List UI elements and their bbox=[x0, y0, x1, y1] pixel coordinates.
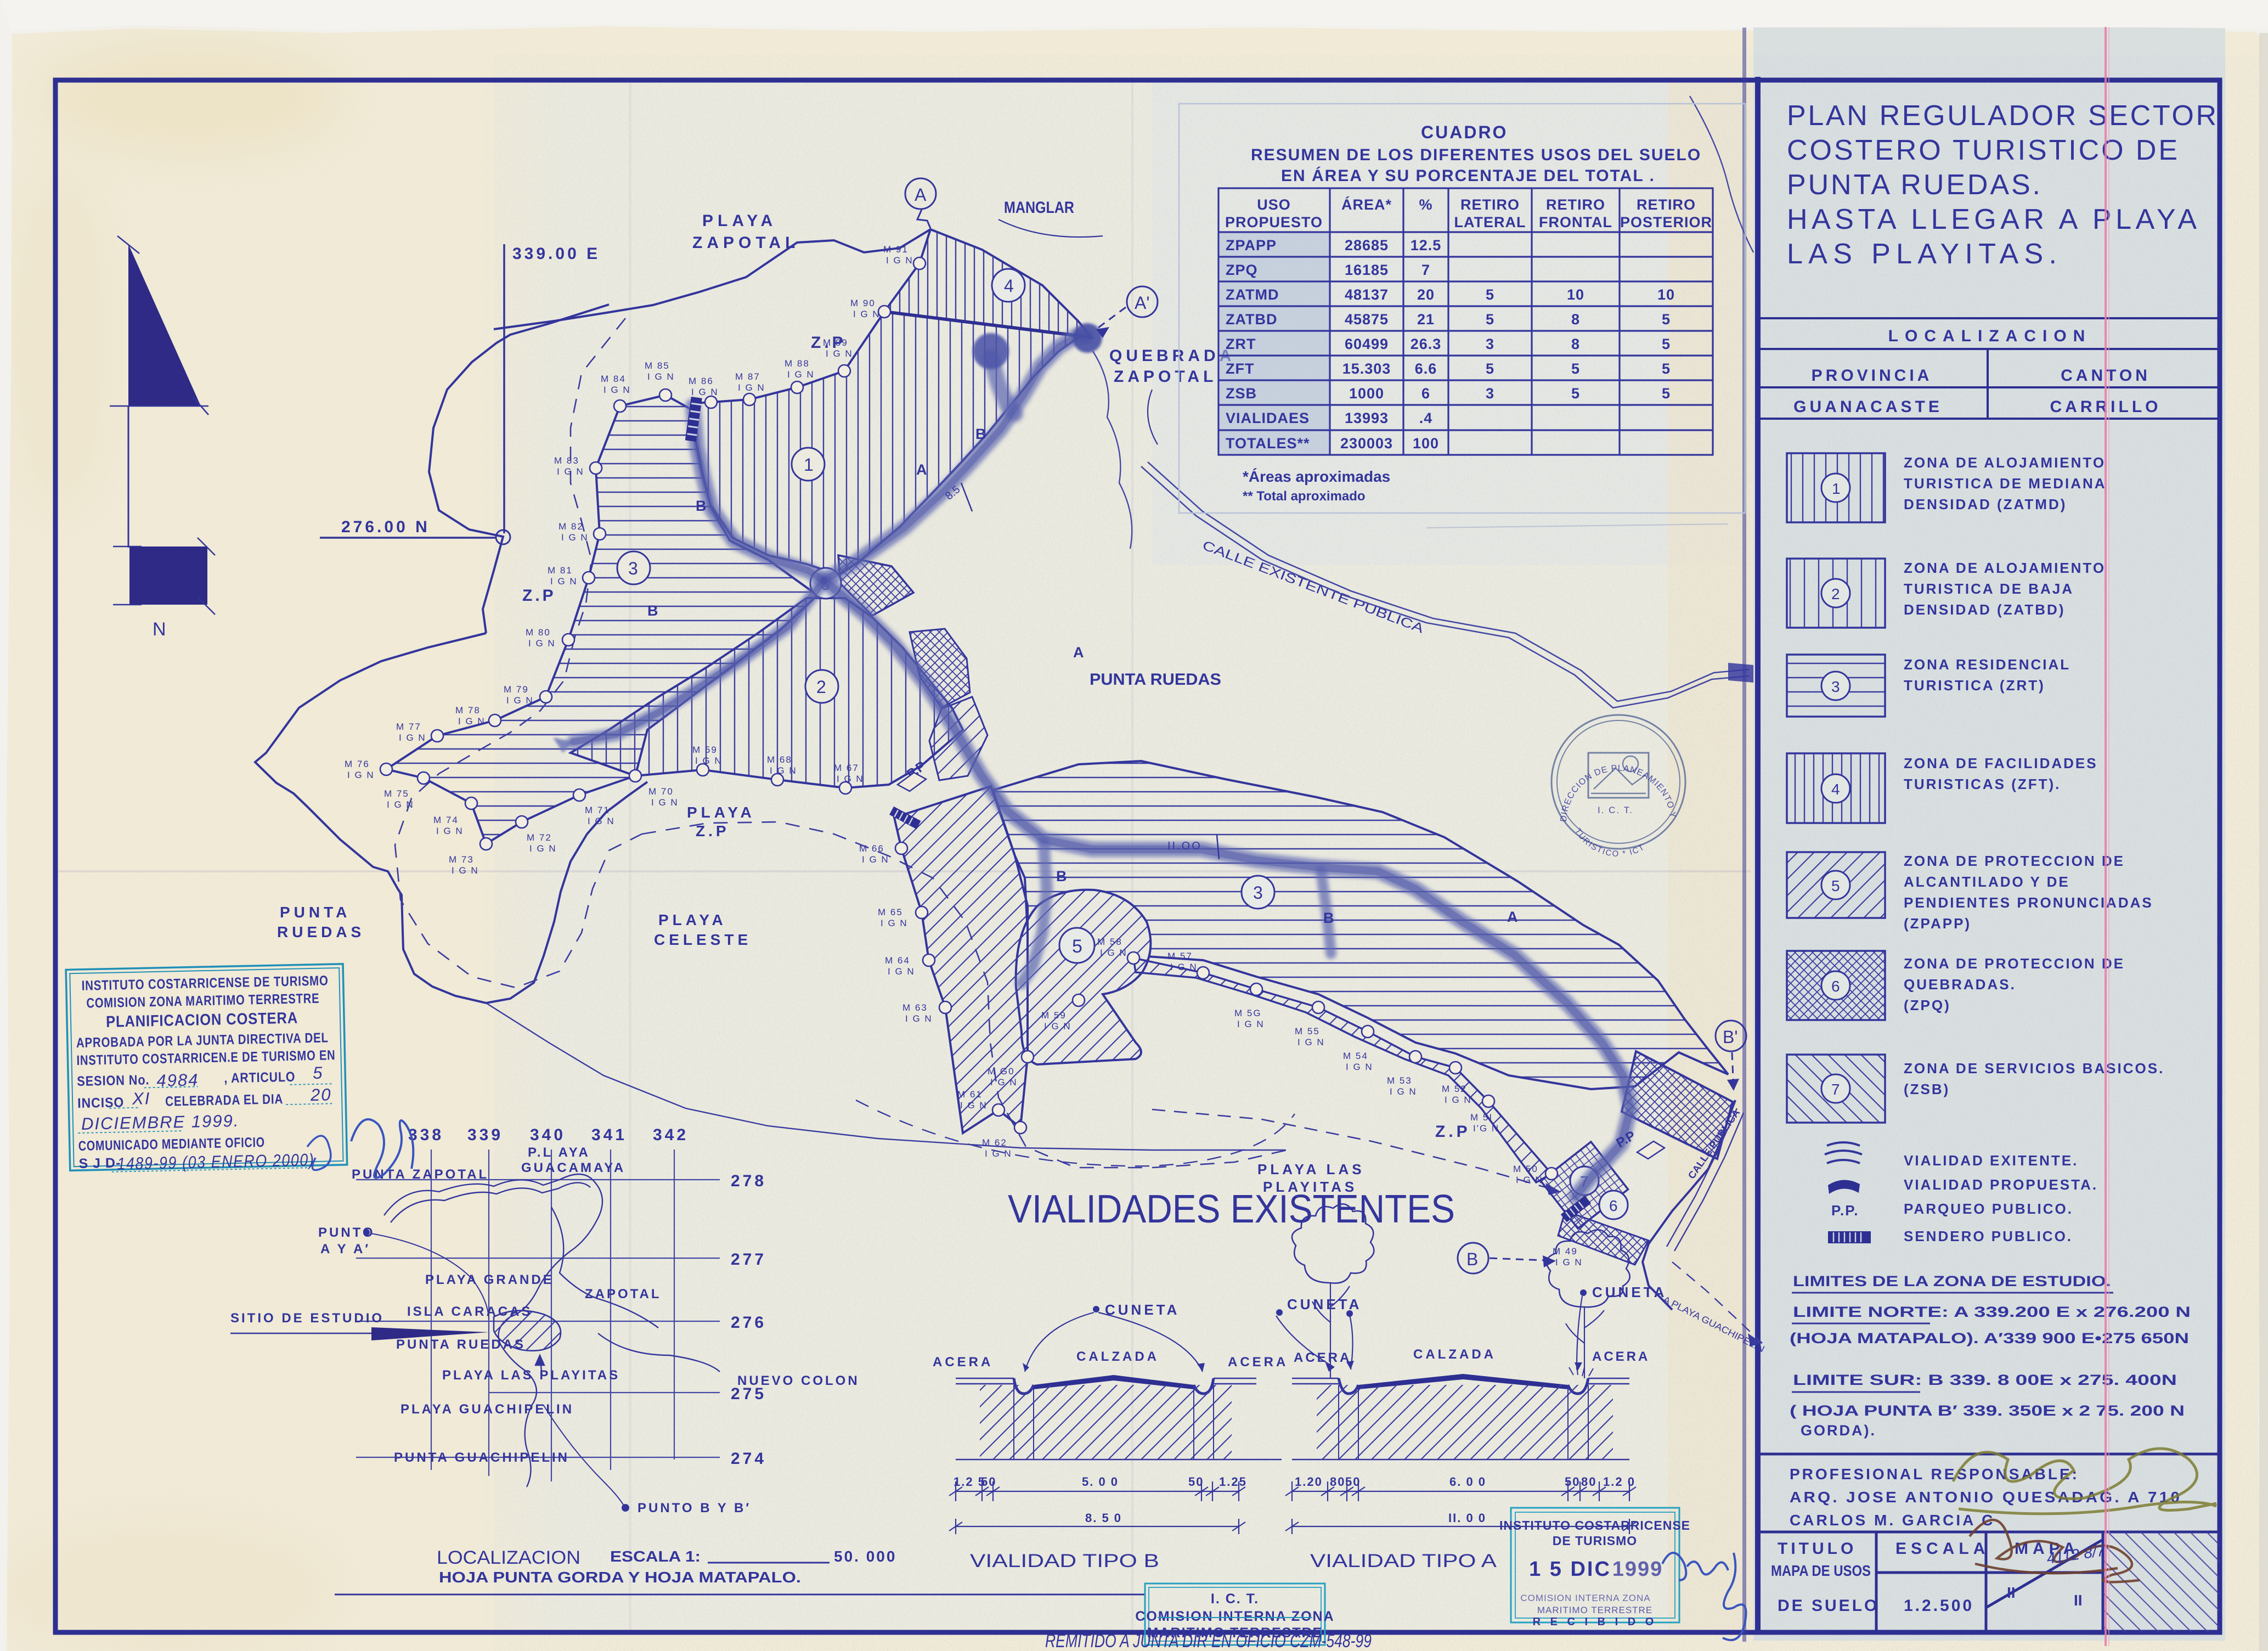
svg-text:VIALIDAD EXITENTE.: VIALIDAD EXITENTE. bbox=[1904, 1152, 2078, 1169]
svg-text:CARLOS M. GARCIA C: CARLOS M. GARCIA C bbox=[1790, 1512, 1995, 1529]
svg-text:M 66: M 66 bbox=[859, 843, 884, 854]
svg-text:ZAPOTAL: ZAPOTAL bbox=[1114, 368, 1217, 386]
svg-text:B: B bbox=[696, 498, 707, 514]
svg-text:I G N: I G N bbox=[985, 1148, 1012, 1159]
svg-text:DE SUELO: DE SUELO bbox=[1778, 1597, 1879, 1615]
svg-text:GUANACASTE: GUANACASTE bbox=[1793, 398, 1943, 416]
svg-text:TURISTICA (ZRT): TURISTICA (ZRT) bbox=[1904, 677, 2045, 694]
svg-text:SESION No.: SESION No. bbox=[77, 1072, 150, 1089]
svg-text:PROFESIONAL RESPONSABLE:: PROFESIONAL RESPONSABLE: bbox=[1790, 1466, 2079, 1483]
svg-text:TURISTICA DE MEDIANA: TURISTICA DE MEDIANA bbox=[1904, 475, 2107, 492]
svg-text:( HOJA PUNTA B′ 339. 350E: ( HOJA PUNTA B′ 339. 350E x 2 75. 200 N bbox=[1790, 1402, 2185, 1419]
svg-text:TOTALES**: TOTALES** bbox=[1226, 435, 1310, 452]
svg-text:RETIRO: RETIRO bbox=[1637, 196, 1696, 213]
svg-text:I G N: I G N bbox=[1555, 1257, 1583, 1267]
svg-text:A: A bbox=[916, 461, 927, 478]
svg-text:LIMITE NORTE: A 339.200 E x: LIMITE NORTE: A 339.200 E x 276.200 N bbox=[1793, 1304, 2191, 1320]
svg-text:ZSB: ZSB bbox=[1226, 385, 1257, 402]
svg-text:FRONTAL: FRONTAL bbox=[1539, 214, 1612, 230]
svg-text:3: 3 bbox=[1253, 883, 1263, 903]
svg-text:5: 5 bbox=[1571, 360, 1580, 377]
svg-text:3: 3 bbox=[1831, 678, 1840, 695]
svg-text:PUNTO B Y B′: PUNTO B Y B′ bbox=[637, 1501, 751, 1515]
svg-text:Z.P: Z.P bbox=[811, 334, 847, 352]
svg-text:I G N: I G N bbox=[561, 532, 589, 543]
svg-text:M 52: M 52 bbox=[1442, 1084, 1467, 1094]
svg-text:M 62: M 62 bbox=[982, 1137, 1007, 1148]
svg-text:ZRT: ZRT bbox=[1226, 336, 1256, 352]
svg-text:I G N: I G N bbox=[529, 843, 557, 854]
svg-text:M 88: M 88 bbox=[785, 358, 810, 369]
svg-text:DE TURISMO: DE TURISMO bbox=[1553, 1534, 1637, 1548]
svg-text:I G N: I G N bbox=[1237, 1019, 1265, 1029]
svg-text:ZONA DE PROTECCION DE: ZONA DE PROTECCION DE bbox=[1904, 853, 2125, 869]
svg-text:M 55: M 55 bbox=[1295, 1026, 1320, 1036]
svg-text:ARQ. JOSE ANTONIO QUESADAG. A: ARQ. JOSE ANTONIO QUESADAG. A 710 bbox=[1790, 1489, 2182, 1506]
svg-text:50: 50 bbox=[1345, 1475, 1361, 1489]
svg-text:RETIRO: RETIRO bbox=[1460, 196, 1520, 213]
svg-text:PUNTA RUEDAS: PUNTA RUEDAS bbox=[1090, 670, 1221, 689]
svg-text:1000: 1000 bbox=[1349, 385, 1384, 402]
svg-text:ACERA: ACERA bbox=[1294, 1350, 1351, 1365]
svg-text:342: 342 bbox=[653, 1126, 689, 1144]
svg-text:M 50: M 50 bbox=[1513, 1164, 1538, 1174]
svg-text:I G N: I G N bbox=[881, 918, 908, 928]
svg-text:I G N: I G N bbox=[506, 695, 534, 706]
svg-text:VIALIDAD TIPO A: VIALIDAD TIPO A bbox=[1310, 1551, 1497, 1571]
svg-text:TURISTICA DE BAJA: TURISTICA DE BAJA bbox=[1904, 581, 2074, 597]
svg-text:B: B bbox=[647, 602, 658, 619]
svg-text:ÁREA*: ÁREA* bbox=[1341, 196, 1392, 213]
svg-text:I G N: I G N bbox=[399, 732, 426, 743]
svg-text:5: 5 bbox=[1662, 385, 1671, 402]
svg-text:M 73: M 73 bbox=[449, 854, 474, 865]
svg-text:M 80: M 80 bbox=[526, 627, 551, 638]
svg-text:48137: 48137 bbox=[1345, 286, 1389, 303]
svg-text:I G N: I G N bbox=[1044, 1021, 1071, 1032]
svg-text:5: 5 bbox=[1486, 360, 1494, 377]
svg-text:INSTITUTO COSTARRICENSE: INSTITUTO COSTARRICENSE bbox=[1499, 1518, 1690, 1532]
svg-text:PLAYA LAS PLAYITAS: PLAYA LAS PLAYITAS bbox=[442, 1368, 620, 1383]
svg-text:6.6: 6.6 bbox=[1415, 360, 1437, 377]
svg-text:1999: 1999 bbox=[1612, 1558, 1663, 1581]
svg-text:I G N: I G N bbox=[1297, 1037, 1325, 1047]
svg-text:SITIO DE ESTUDIO: SITIO DE ESTUDIO bbox=[230, 1311, 384, 1326]
svg-text:M 78: M 78 bbox=[455, 705, 481, 715]
svg-text:13993: 13993 bbox=[1345, 410, 1389, 426]
svg-text:Z.P: Z.P bbox=[696, 822, 730, 839]
svg-text:M 68: M 68 bbox=[767, 754, 792, 765]
svg-text:I G N: I G N bbox=[651, 797, 679, 808]
svg-text:I G N: I G N bbox=[862, 854, 889, 865]
svg-text:CUNETA: CUNETA bbox=[1287, 1296, 1362, 1312]
svg-text:5. 0 0: 5. 0 0 bbox=[1082, 1475, 1119, 1489]
svg-text:ACERA: ACERA bbox=[933, 1355, 993, 1370]
svg-text:M 67: M 67 bbox=[834, 763, 859, 773]
svg-text:I G N: I G N bbox=[1445, 1095, 1472, 1105]
svg-text:M 53: M 53 bbox=[1387, 1075, 1412, 1086]
svg-text:VIALIDAES: VIALIDAES bbox=[1226, 410, 1310, 426]
svg-text:DENSIDAD (ZATMD): DENSIDAD (ZATMD) bbox=[1904, 496, 2067, 512]
svg-text:276: 276 bbox=[731, 1314, 766, 1332]
svg-text:PLAYA: PLAYA bbox=[658, 911, 727, 928]
svg-text:340: 340 bbox=[530, 1126, 566, 1144]
svg-text:ESCALA 1:: ESCALA 1: bbox=[610, 1548, 701, 1565]
svg-text:I G N: I G N bbox=[452, 865, 479, 876]
svg-text:PARQUEO PUBLICO.: PARQUEO PUBLICO. bbox=[1904, 1201, 2073, 1217]
svg-text:16185: 16185 bbox=[1345, 262, 1389, 278]
svg-text:COMISION INTERNA ZONA: COMISION INTERNA ZONA bbox=[1135, 1609, 1334, 1624]
svg-text:I. C. T.: I. C. T. bbox=[1598, 805, 1633, 815]
svg-text:1: 1 bbox=[804, 455, 814, 475]
svg-text:274: 274 bbox=[731, 1450, 766, 1468]
svg-text:6: 6 bbox=[1421, 385, 1430, 402]
svg-text:ZONA RESIDENCIAL: ZONA RESIDENCIAL bbox=[1904, 656, 2070, 673]
svg-text:26.3: 26.3 bbox=[1411, 336, 1442, 352]
svg-text:II. 0 0: II. 0 0 bbox=[1448, 1511, 1486, 1525]
svg-text:ZPQ: ZPQ bbox=[1226, 262, 1258, 278]
svg-text:TURISTICAS (ZFT).: TURISTICAS (ZFT). bbox=[1904, 776, 2061, 792]
svg-text:LOCALIZACION: LOCALIZACION bbox=[1888, 327, 2092, 345]
svg-text:I G N: I G N bbox=[528, 638, 556, 649]
svg-text:B': B' bbox=[1723, 1027, 1737, 1047]
svg-text:M 54: M 54 bbox=[1343, 1051, 1368, 1061]
svg-text:8. 5 0: 8. 5 0 bbox=[1085, 1511, 1122, 1525]
svg-text:B: B bbox=[1466, 1249, 1478, 1269]
svg-text:(HOJA MATAPALO). A′339 900 E: (HOJA MATAPALO). A′339 900 E•275 650N bbox=[1790, 1330, 2189, 1346]
svg-text:2: 2 bbox=[1831, 585, 1840, 602]
svg-text:I G N: I G N bbox=[853, 309, 881, 319]
svg-text:TITULO: TITULO bbox=[1778, 1540, 1857, 1558]
svg-text:80: 80 bbox=[1330, 1475, 1345, 1489]
svg-text:LATERAL: LATERAL bbox=[1454, 214, 1526, 230]
svg-text:M G0: M G0 bbox=[988, 1066, 1015, 1077]
svg-text:XI: XI bbox=[132, 1089, 151, 1108]
svg-text:28685: 28685 bbox=[1345, 237, 1389, 253]
svg-text:I G N: I G N bbox=[770, 765, 797, 776]
svg-text:276.00 N: 276.00 N bbox=[341, 518, 430, 536]
svg-text:341: 341 bbox=[591, 1126, 627, 1144]
svg-text:I G N: I G N bbox=[888, 966, 915, 977]
svg-text:I'G N: I'G N bbox=[1473, 1123, 1499, 1134]
svg-text:ZONA DE PROTECCION DE: ZONA DE PROTECCION DE bbox=[1904, 955, 2125, 972]
svg-text:M 86: M 86 bbox=[689, 376, 714, 386]
svg-text:50: 50 bbox=[1188, 1475, 1204, 1489]
svg-text:ACERA: ACERA bbox=[1228, 1355, 1288, 1370]
svg-text:PLAYA GUACHIPELIN: PLAYA GUACHIPELIN bbox=[400, 1402, 574, 1417]
svg-text:5: 5 bbox=[313, 1063, 324, 1083]
svg-text:M 64: M 64 bbox=[885, 955, 910, 966]
svg-text:I G N: I G N bbox=[1516, 1175, 1543, 1185]
svg-text:230003: 230003 bbox=[1340, 435, 1393, 452]
svg-text:I G N: I G N bbox=[436, 826, 464, 836]
svg-text:50: 50 bbox=[981, 1475, 996, 1489]
svg-text:PLAYA: PLAYA bbox=[687, 804, 755, 821]
svg-text:(ZSB): (ZSB) bbox=[1904, 1081, 1950, 1097]
svg-text:278: 278 bbox=[731, 1172, 766, 1190]
svg-text:M 63: M 63 bbox=[902, 1002, 928, 1013]
svg-text:PLAYA GRANDE: PLAYA GRANDE bbox=[425, 1272, 554, 1287]
svg-text:HASTA LLEGAR A PLAYA: HASTA LLEGAR A PLAYA bbox=[1787, 204, 2197, 235]
svg-text:1.20: 1.20 bbox=[1295, 1475, 1323, 1489]
svg-text:6. 0 0: 6. 0 0 bbox=[1449, 1475, 1486, 1489]
svg-text:I G N: I G N bbox=[647, 371, 675, 382]
svg-text:I G N: I G N bbox=[886, 255, 913, 266]
svg-text:8: 8 bbox=[1571, 311, 1580, 328]
svg-text:3: 3 bbox=[1486, 336, 1494, 352]
svg-text:ZAPOTAL: ZAPOTAL bbox=[585, 1287, 662, 1301]
svg-text:PUNTA GUACHIPELIN: PUNTA GUACHIPELIN bbox=[394, 1450, 569, 1465]
svg-text:LAS PLAYITAS.: LAS PLAYITAS. bbox=[1787, 238, 2057, 270]
svg-text:LOCALIZACION: LOCALIZACION bbox=[437, 1547, 580, 1568]
svg-text:CUADRO: CUADRO bbox=[1421, 122, 1508, 142]
svg-text:CALZADA: CALZADA bbox=[1413, 1347, 1496, 1362]
svg-text:I G N: I G N bbox=[691, 387, 719, 397]
svg-text:ACERA: ACERA bbox=[1592, 1349, 1650, 1364]
svg-text:II.OO: II.OO bbox=[1167, 840, 1202, 852]
svg-text:M 59: M 59 bbox=[1041, 1010, 1067, 1021]
svg-text:M 70: M 70 bbox=[648, 786, 674, 797]
svg-text:I G N: I G N bbox=[787, 369, 815, 380]
svg-text:RETIRO: RETIRO bbox=[1546, 196, 1605, 213]
svg-text:2: 2 bbox=[816, 677, 826, 697]
svg-text:.4: .4 bbox=[1419, 410, 1433, 426]
svg-text:EN ÁREA Y SU PORCENTAJE DEL TO: EN ÁREA Y SU PORCENTAJE DEL TOTAL . bbox=[1281, 166, 1655, 185]
svg-text:HOJA PUNTA GORDA Y HOJA MATAPA: HOJA PUNTA GORDA Y HOJA MATAPALO. bbox=[439, 1569, 801, 1586]
svg-text:MANGLAR: MANGLAR bbox=[1004, 199, 1074, 217]
svg-text:6: 6 bbox=[1609, 1197, 1618, 1214]
svg-text:I G N: I G N bbox=[990, 1077, 1018, 1087]
svg-text:M 85: M 85 bbox=[645, 360, 670, 371]
svg-text:B: B bbox=[1056, 868, 1067, 884]
svg-text:I G N: I G N bbox=[1346, 1062, 1373, 1072]
svg-text:I G N: I G N bbox=[1390, 1086, 1417, 1097]
svg-text:M 71: M 71 bbox=[585, 805, 610, 815]
svg-text:MAPA DE USOS: MAPA DE USOS bbox=[1771, 1562, 1871, 1579]
svg-text:ISLA CARACAS: ISLA CARACAS bbox=[407, 1304, 532, 1319]
svg-text:I G N: I G N bbox=[603, 385, 631, 395]
svg-text:COMISION INTERNA ZONA: COMISION INTERNA ZONA bbox=[1520, 1593, 1650, 1603]
svg-text:M 59: M 59 bbox=[692, 745, 718, 755]
svg-text:ZAPOTAL: ZAPOTAL bbox=[692, 234, 799, 252]
svg-text:M 5G: M 5G bbox=[1234, 1008, 1262, 1018]
svg-text:I G N: I G N bbox=[550, 576, 578, 587]
svg-text:PROVINCIA: PROVINCIA bbox=[1812, 367, 1933, 385]
svg-text:REMITIDO A JUNTA DIR EN OFICIO: REMITIDO A JUNTA DIR EN OFICIO CZM-548-9… bbox=[1045, 1631, 1372, 1651]
svg-text:, ARTICULO: , ARTICULO bbox=[224, 1069, 296, 1086]
svg-text:50. 000: 50. 000 bbox=[834, 1548, 896, 1565]
svg-text:45875: 45875 bbox=[1345, 311, 1389, 328]
svg-text:M 82: M 82 bbox=[558, 521, 584, 532]
svg-text:M 79: M 79 bbox=[504, 684, 529, 695]
svg-text:M 58: M 58 bbox=[1097, 937, 1122, 947]
svg-text:1 5 DIC: 1 5 DIC bbox=[1529, 1558, 1611, 1581]
svg-text:PLAYA LAS: PLAYA LAS bbox=[1257, 1161, 1365, 1177]
svg-text:(ZPAPP): (ZPAPP) bbox=[1904, 915, 1971, 932]
svg-text:ALCANTILADO Y DE: ALCANTILADO Y DE bbox=[1904, 874, 2070, 890]
svg-text:A Y A′: A Y A′ bbox=[320, 1242, 370, 1256]
svg-text:5: 5 bbox=[1571, 385, 1580, 402]
svg-text:I G N: I G N bbox=[837, 774, 864, 784]
svg-text:PUNTA ZAPOTAL: PUNTA ZAPOTAL bbox=[352, 1167, 489, 1182]
svg-text:5: 5 bbox=[1486, 311, 1494, 328]
svg-text:P.P.: P.P. bbox=[1831, 1202, 1859, 1219]
svg-text:7: 7 bbox=[1831, 1081, 1840, 1098]
svg-text:VIALIDAD PROPUESTA.: VIALIDAD PROPUESTA. bbox=[1904, 1176, 2098, 1193]
svg-text:CELEBRADA EL DIA: CELEBRADA EL DIA bbox=[165, 1091, 284, 1109]
svg-text:339: 339 bbox=[467, 1126, 503, 1144]
svg-text:60499: 60499 bbox=[1345, 336, 1389, 352]
svg-text:DENSIDAD (ZATBD): DENSIDAD (ZATBD) bbox=[1904, 601, 2066, 618]
svg-text:ZONA DE ALOJAMIENTO: ZONA DE ALOJAMIENTO bbox=[1904, 454, 2106, 471]
svg-text:M 65: M 65 bbox=[878, 907, 903, 917]
svg-text:II: II bbox=[2007, 1584, 2016, 1601]
svg-text:I. C. T.: I. C. T. bbox=[1211, 1591, 1259, 1607]
svg-text:VIALIDADES EXISTENTES: VIALIDADES EXISTENTES bbox=[1008, 1187, 1455, 1231]
svg-text:1.2.500: 1.2.500 bbox=[1904, 1597, 1974, 1615]
svg-text:5: 5 bbox=[1662, 336, 1671, 352]
svg-text:NUEVO COLON: NUEVO COLON bbox=[737, 1373, 860, 1388]
svg-text:POSTERIOR: POSTERIOR bbox=[1620, 214, 1712, 230]
svg-text:1: 1 bbox=[1832, 480, 1841, 497]
svg-text:QUEBRADA: QUEBRADA bbox=[1109, 347, 1235, 365]
svg-text:7: 7 bbox=[1421, 262, 1430, 278]
svg-text:M 77: M 77 bbox=[396, 722, 421, 732]
svg-text:M 90: M 90 bbox=[850, 298, 876, 308]
svg-text:LIMITES DE LA ZONA DE ESTUDIO.: LIMITES DE LA ZONA DE ESTUDIO. bbox=[1793, 1273, 2111, 1289]
svg-text:20: 20 bbox=[1417, 286, 1435, 303]
svg-text:I G N: I G N bbox=[905, 1013, 933, 1024]
svg-text:** Total aproximado: ** Total aproximado bbox=[1243, 489, 1366, 504]
svg-text:INCISO: INCISO bbox=[77, 1095, 125, 1111]
svg-text:DICIEMBRE 1999.: DICIEMBRE 1999. bbox=[81, 1111, 240, 1134]
svg-text:(ZPQ): (ZPQ) bbox=[1904, 997, 1951, 1013]
svg-text:B: B bbox=[975, 426, 986, 442]
svg-text:I G N: I G N bbox=[347, 770, 375, 780]
svg-text:RUEDAS: RUEDAS bbox=[277, 923, 365, 940]
svg-text:USO: USO bbox=[1257, 196, 1291, 213]
svg-text:S J D-: S J D- bbox=[78, 1155, 121, 1171]
svg-text:3: 3 bbox=[1486, 385, 1494, 402]
svg-text:M 74: M 74 bbox=[433, 815, 459, 825]
svg-text:M 5I: M 5I bbox=[1470, 1112, 1493, 1123]
svg-text:PENDIENTES PRONUNCIADAS: PENDIENTES PRONUNCIADAS bbox=[1904, 894, 2153, 911]
svg-text:I G N: I G N bbox=[588, 816, 615, 826]
svg-text:5: 5 bbox=[1072, 936, 1082, 957]
svg-text:12.5: 12.5 bbox=[1411, 237, 1442, 253]
svg-text:10: 10 bbox=[1567, 286, 1584, 303]
svg-text:15.303: 15.303 bbox=[1342, 360, 1391, 377]
svg-text:ESCALA: ESCALA bbox=[1895, 1540, 1989, 1558]
svg-text:5: 5 bbox=[1662, 311, 1671, 328]
svg-text:ZONA DE FACILIDADES: ZONA DE FACILIDADES bbox=[1904, 755, 2098, 771]
svg-text:Z.P: Z.P bbox=[522, 587, 556, 605]
svg-text:100: 100 bbox=[1413, 435, 1439, 452]
svg-text:I G N: I G N bbox=[1100, 948, 1127, 958]
svg-text:M 75: M 75 bbox=[384, 788, 409, 799]
svg-text:21: 21 bbox=[1417, 311, 1435, 328]
svg-text:*Áreas aproximadas: *Áreas aproximadas bbox=[1243, 468, 1390, 485]
svg-text:CUNETA: CUNETA bbox=[1105, 1301, 1180, 1318]
svg-text:M 87: M 87 bbox=[735, 371, 760, 382]
svg-text:M 84: M 84 bbox=[601, 374, 626, 384]
svg-text:M 57: M 57 bbox=[1167, 951, 1193, 961]
svg-text:LIMITE SUR: B 339. 8 00E x: LIMITE SUR: B 339. 8 00E x 275. 400N bbox=[1793, 1372, 2177, 1388]
svg-text:I G N: I G N bbox=[695, 756, 723, 766]
svg-text:M 91: M 91 bbox=[883, 244, 909, 255]
svg-text:MARITIMO TERRESTRE: MARITIMO TERRESTRE bbox=[1537, 1605, 1652, 1615]
svg-text:CUNETA: CUNETA bbox=[1592, 1284, 1667, 1300]
svg-text:8: 8 bbox=[1571, 336, 1580, 352]
svg-text:QUEBRADAS.: QUEBRADAS. bbox=[1904, 976, 2016, 993]
svg-text:I G N: I G N bbox=[960, 1100, 988, 1111]
svg-text:I G N: I G N bbox=[387, 799, 414, 810]
svg-text:RESUMEN DE LOS DIFERENTES USOS: RESUMEN DE LOS DIFERENTES USOS DEL SUELO bbox=[1251, 146, 1701, 164]
svg-text:PLAYA: PLAYA bbox=[702, 212, 777, 230]
svg-text:ZFT: ZFT bbox=[1226, 360, 1254, 377]
svg-text:II: II bbox=[2074, 1592, 2083, 1609]
svg-text:5: 5 bbox=[1831, 877, 1840, 894]
svg-text:GUACAMAYA: GUACAMAYA bbox=[521, 1160, 625, 1175]
svg-text:CELESTE: CELESTE bbox=[654, 931, 752, 948]
svg-text:B: B bbox=[1323, 910, 1334, 926]
svg-text:ZONA DE SERVICIOS BASICOS.: ZONA DE SERVICIOS BASICOS. bbox=[1904, 1060, 2164, 1077]
svg-text:I G N: I G N bbox=[557, 466, 584, 477]
svg-text:%: % bbox=[1419, 196, 1432, 213]
svg-text:6: 6 bbox=[1831, 978, 1840, 995]
svg-text:M 81: M 81 bbox=[548, 565, 573, 576]
svg-text:ZONA DE ALOJAMIENTO: ZONA DE ALOJAMIENTO bbox=[1904, 560, 2106, 576]
svg-text:I G N: I G N bbox=[458, 716, 486, 726]
svg-text:ZATBD: ZATBD bbox=[1226, 311, 1277, 328]
svg-text:4: 4 bbox=[1004, 276, 1014, 296]
svg-text:PUNTA: PUNTA bbox=[280, 904, 351, 921]
svg-text:Z.P: Z.P bbox=[1435, 1123, 1471, 1141]
svg-text:50: 50 bbox=[1565, 1475, 1580, 1489]
svg-text:A: A bbox=[1073, 644, 1084, 661]
svg-text:SENDERO PUBLICO.: SENDERO PUBLICO. bbox=[1904, 1228, 2073, 1244]
svg-text:5: 5 bbox=[1486, 286, 1494, 303]
svg-text:CALZADA: CALZADA bbox=[1076, 1349, 1159, 1364]
svg-text:ZATMD: ZATMD bbox=[1226, 286, 1279, 303]
svg-text:5: 5 bbox=[1662, 360, 1671, 377]
svg-text:R E C I B I D O: R E C I B I D O bbox=[1533, 1616, 1657, 1628]
svg-text:M 76: M 76 bbox=[345, 759, 370, 769]
svg-text:N: N bbox=[153, 619, 168, 640]
svg-text:ZPAPP: ZPAPP bbox=[1226, 237, 1277, 253]
svg-text:M 83: M 83 bbox=[554, 455, 579, 466]
svg-text:A: A bbox=[915, 185, 927, 205]
svg-text:A: A bbox=[1507, 909, 1518, 925]
svg-text:1.2 0: 1.2 0 bbox=[1603, 1475, 1635, 1489]
svg-text:COSTERO TURISTICO DE: COSTERO TURISTICO DE bbox=[1787, 134, 2177, 166]
svg-text:I G N: I G N bbox=[1170, 962, 1198, 972]
svg-text:I G N: I G N bbox=[738, 382, 765, 393]
svg-text:20: 20 bbox=[310, 1085, 332, 1105]
svg-text:VIALIDAD TIPO B: VIALIDAD TIPO B bbox=[970, 1551, 1159, 1571]
svg-text:A': A' bbox=[1135, 293, 1149, 313]
svg-text:PUNTA RUEDAS: PUNTA RUEDAS bbox=[396, 1337, 526, 1352]
svg-text:GORDA).: GORDA). bbox=[1801, 1422, 1876, 1439]
svg-text:1.25: 1.25 bbox=[1219, 1475, 1247, 1489]
svg-text:277: 277 bbox=[731, 1250, 766, 1269]
svg-text:PUNTA RUEDAS.: PUNTA RUEDAS. bbox=[1787, 169, 2040, 201]
svg-text:M 72: M 72 bbox=[527, 832, 552, 843]
svg-text:M 61: M 61 bbox=[957, 1089, 983, 1100]
svg-text:10: 10 bbox=[1657, 286, 1675, 303]
svg-text:80: 80 bbox=[1581, 1475, 1596, 1489]
svg-text:PROPUESTO: PROPUESTO bbox=[1225, 214, 1323, 230]
